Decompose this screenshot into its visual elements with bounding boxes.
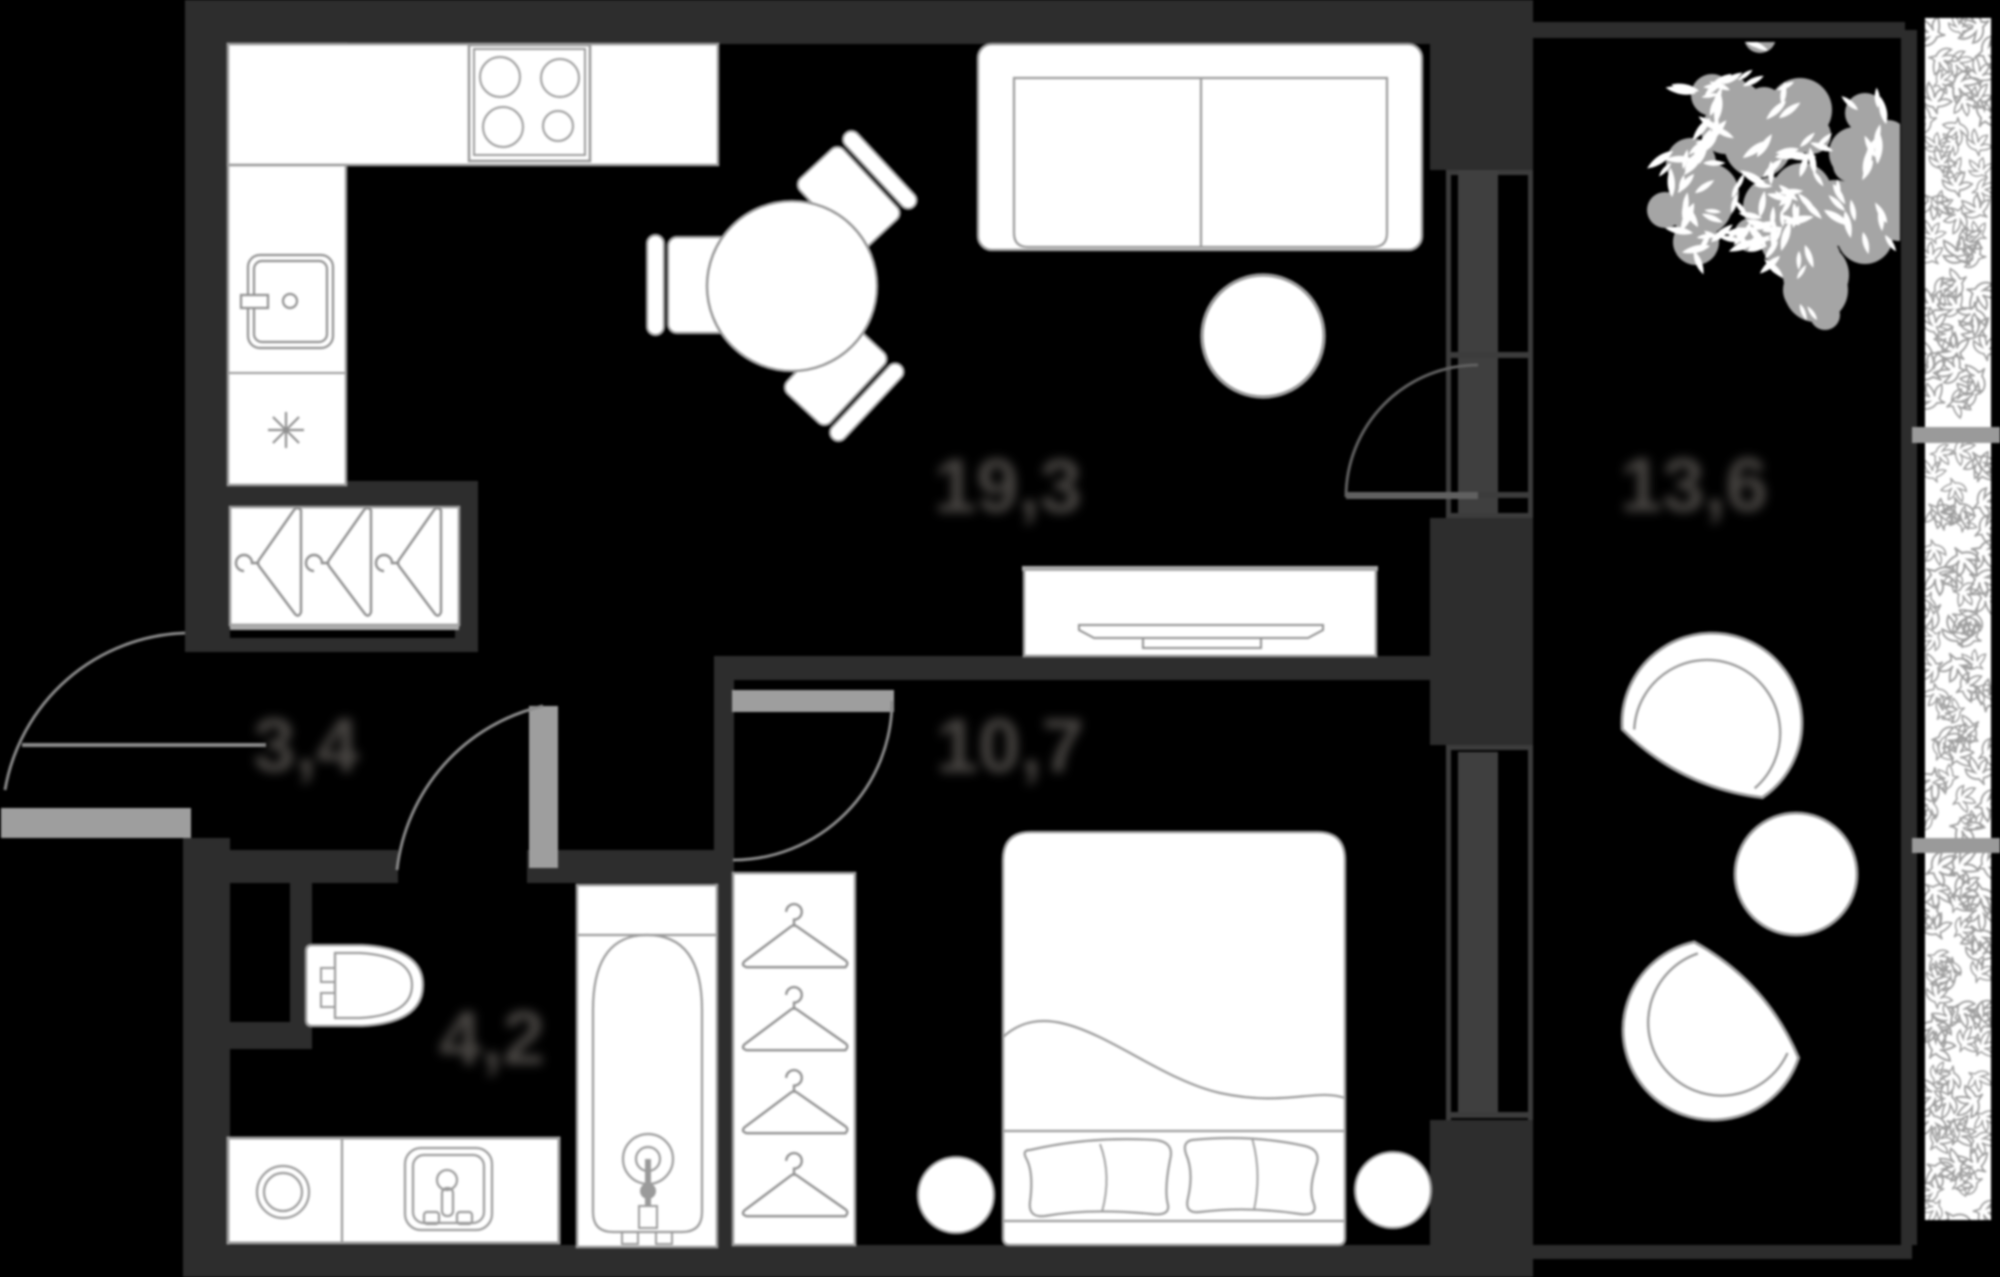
svg-text:19,3: 19,3 (934, 444, 1082, 529)
svg-text:3,4: 3,4 (253, 703, 359, 788)
svg-text:4,2: 4,2 (439, 996, 545, 1081)
svg-text:13,6: 13,6 (1620, 443, 1768, 528)
svg-text:10,7: 10,7 (936, 704, 1084, 789)
